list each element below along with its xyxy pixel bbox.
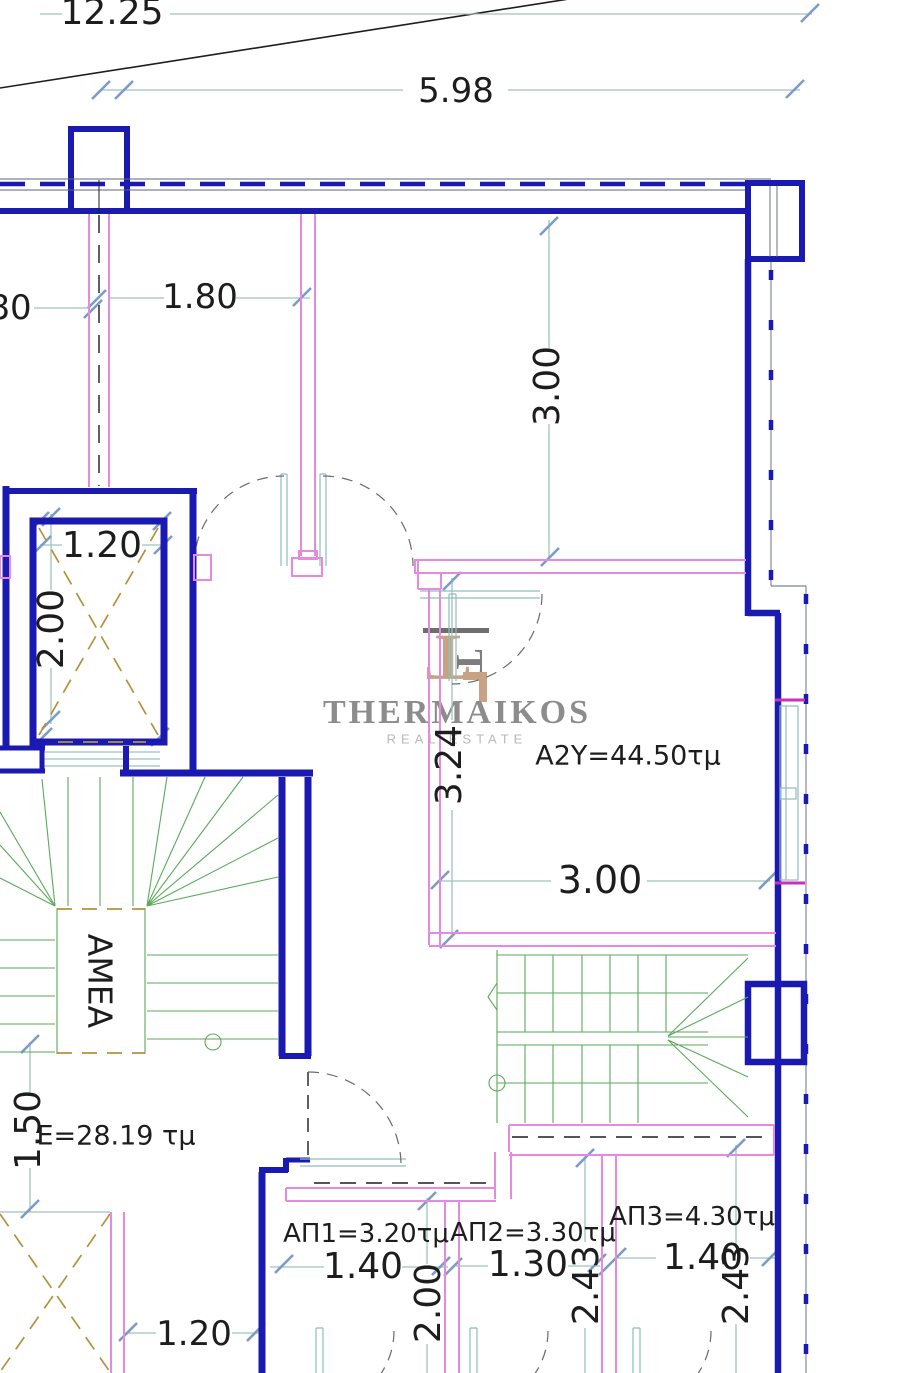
dim-front-width: 5.98 [418,74,494,108]
top-right-column [748,183,802,259]
plan-drawing [0,0,917,1373]
floor-plan-canvas: T T THERMAIKOS REAL ESTATE [0,0,917,1373]
dim-left-partial: 80 [0,291,32,325]
wall-foot [292,558,322,576]
storage-corridor-door [300,1072,406,1166]
door-leaf [281,474,326,566]
corridor-double-door [194,474,413,566]
label-amea: AMEA [84,934,117,1028]
stair-left [0,777,278,1054]
dim-corridor-bottom: 1.20 [156,1317,232,1351]
door-swing-arc [318,1331,711,1373]
dimension-lines [0,14,812,1373]
dim-storage3-depth: 2.43 [719,1245,755,1325]
dim-storage1-width: 1.40 [323,1249,403,1285]
bottom-left-shaft [0,1212,124,1373]
door-swing-arc [452,594,542,684]
shaft-cross [0,1214,110,1372]
elevator-door [194,555,211,580]
door-swing-arc [194,476,413,566]
dim-apartment-depth: 3.24 [432,725,468,805]
label-storage3: ΑΠ3=4.30τμ [609,1204,775,1230]
label-common-area: E=28.19 τμ [37,1123,196,1150]
mid-walls [0,746,313,1373]
dim-room-depth: 3.00 [530,346,566,426]
door-swing-arc [308,1072,401,1165]
right-exterior-wall [748,183,806,1373]
door-leaf [316,1328,640,1373]
storage-doors [316,1328,711,1373]
top-exterior-wall [0,129,771,486]
dim-elevator-depth: 2.00 [34,589,70,669]
dim-apartment-width: 3.00 [558,861,643,899]
section-hatch [40,752,160,766]
apartment-door [420,591,542,684]
window [780,706,798,880]
dim-hall-width: 1.80 [162,280,238,314]
dim-overall-width: 12.25 [60,0,163,31]
dim-storage2-width: 1.30 [488,1247,568,1283]
stair-right [488,950,748,1123]
dim-storage2-depth: 2.43 [569,1245,605,1325]
label-storage2: ΑΠ2=3.30τμ [450,1220,616,1246]
label-storage1: ΑΠ1=3.20τμ [283,1221,449,1247]
dim-storage1-depth: 2.00 [411,1263,447,1343]
stair-start-marker [205,1034,221,1050]
label-apartment: A2Y=44.50τμ [535,743,721,770]
dim-elevator-width: 1.20 [62,528,142,564]
